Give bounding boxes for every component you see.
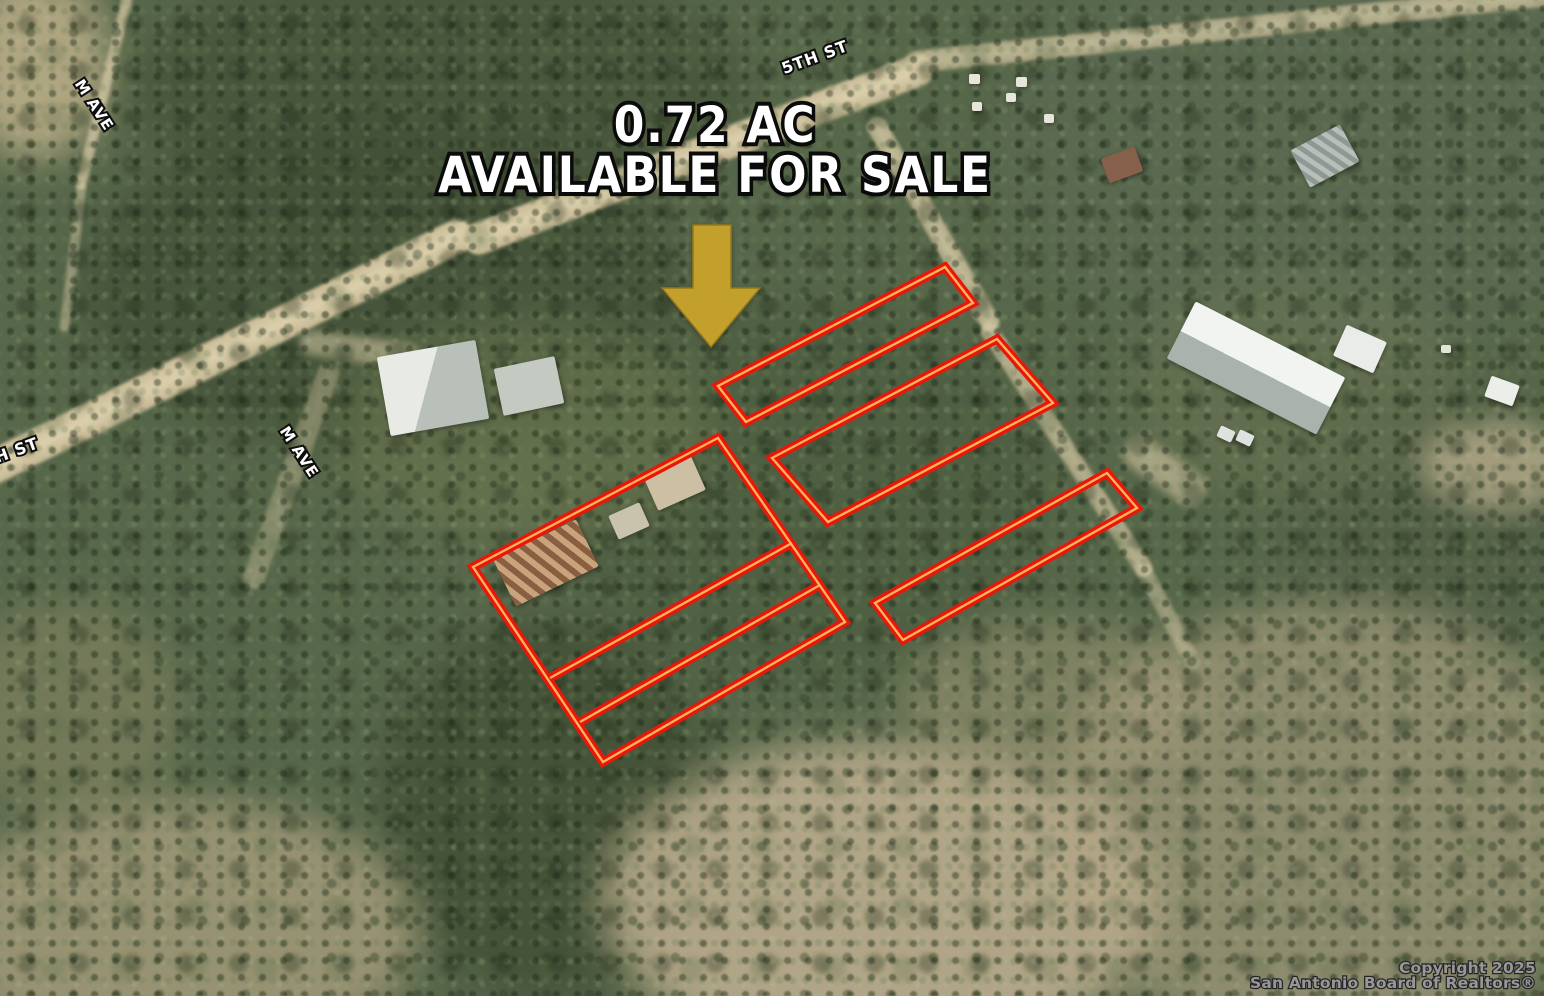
- parcel-boundary-east-strip: [875, 473, 1137, 640]
- copyright-attribution: Copyright 2025 San Antonio Board of Real…: [1250, 961, 1536, 991]
- status-text: AVAILABLE FOR SALE: [86, 150, 1344, 200]
- parcel-boundary-inner-line: [875, 473, 1137, 640]
- acreage-text: 0.72 AC: [86, 100, 1344, 150]
- down-arrow-icon: [662, 225, 760, 347]
- parcel-boundary-center: [772, 339, 1053, 522]
- parcel-boundary-inner-line: [772, 339, 1053, 522]
- copyright-line: San Antonio Board of Realtors®: [1250, 976, 1536, 991]
- sale-headline: 0.72 AC AVAILABLE FOR SALE: [86, 100, 1344, 200]
- parcel-divider-inner-line: [550, 543, 792, 678]
- aerial-listing-photo: 5TH ST M AVE M AVE H ST 0.72 AC AVAILABL…: [0, 0, 1544, 996]
